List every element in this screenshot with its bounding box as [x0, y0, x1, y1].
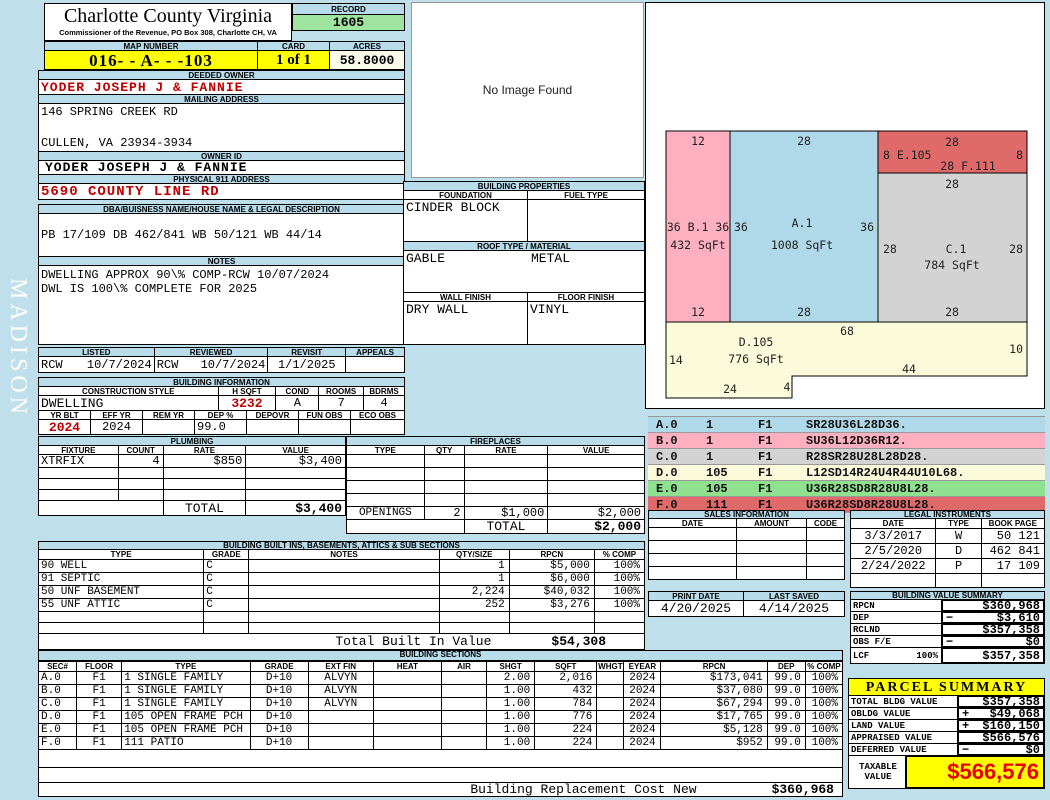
legend-row-d: D.0 105 F1 L12SD14R24U4R44U10L68.	[648, 464, 1045, 480]
table-row: 90 WELLC1$5,000100%	[39, 560, 645, 573]
table-cell	[373, 711, 441, 724]
sections-col-heat: HEAT	[373, 662, 441, 672]
page-title: Charlotte County Virginia	[45, 4, 291, 28]
legend-vector: R28SR28U28L28D28.	[806, 450, 928, 464]
construction-style-value: DWELLING	[38, 395, 219, 411]
table-cell	[249, 560, 439, 573]
table-cell: 105 OPEN FRAME PCH	[122, 711, 250, 724]
brcn-label: Building Replacement Cost New	[470, 782, 696, 797]
dates-block: PRINT DATE LAST SAVED 4/20/2025 4/14/202…	[648, 591, 845, 617]
sketch-d-4: 4	[784, 380, 791, 394]
table-cell: 111 PATIO	[122, 737, 250, 750]
table-row: F.0F1111 PATIOD+101.002242024$95299.0100…	[39, 737, 843, 750]
sketch-d-right: 10	[1009, 342, 1023, 356]
sketch-c1-bottom: 28	[945, 305, 959, 319]
sketch-b1-sqft: 432 SqFt	[670, 238, 725, 252]
openings-rate: $1,000	[464, 506, 549, 520]
table-cell: ALVYN	[308, 685, 373, 698]
roof-material-value: METAL	[531, 251, 570, 292]
table-cell: D+10	[250, 724, 308, 737]
table-cell: 50 121	[981, 529, 1044, 544]
reviewed-date: 10/7/2024	[201, 357, 266, 372]
revisit-date: 1/1/2025	[267, 356, 346, 373]
parcel-summary: PARCEL SUMMARY TOTAL BLDG VALUE $357,358…	[848, 678, 1045, 789]
building-sections-block: BUILDING SECTIONS SEC# FLOOR TYPE GRADE …	[38, 650, 843, 797]
taxable-value: $566,576	[905, 755, 1045, 789]
legend-vector: SR28U36L28D36.	[806, 418, 907, 432]
table-cell: F1	[77, 711, 122, 724]
table-cell: F1	[77, 698, 122, 711]
building-sections-title: BUILDING SECTIONS	[38, 650, 843, 661]
record-box: RECORD 1605	[292, 3, 405, 31]
table-cell: 100%	[594, 573, 644, 586]
physical-address-value: 5690 COUNTY LINE RD	[38, 183, 405, 200]
table-cell: 1.00	[487, 711, 535, 724]
brcn-value: $360,968	[772, 782, 834, 797]
plumbing-total-label: TOTAL	[163, 500, 247, 516]
no-image-text: No Image Found	[483, 83, 572, 97]
table-cell: F1	[77, 724, 122, 737]
table-cell: 2024	[624, 737, 661, 750]
legend-row-c: C.0 1 F1 R28SR28U28L28D28.	[648, 448, 1045, 464]
dep-value: 99.0	[194, 419, 247, 435]
sketch-c1-sqft: 784 SqFt	[924, 258, 979, 272]
table-cell: ALVYN	[308, 672, 373, 685]
acres-value: 58.8000	[329, 50, 405, 70]
table-row: 50 UNF BASEMENTC2,224$40,032100%	[39, 586, 645, 599]
empty-row	[39, 612, 645, 623]
table-cell: C	[204, 599, 249, 612]
plumbing-total-value: $3,400	[245, 500, 346, 516]
appeals-value	[345, 356, 405, 373]
foundation-value: CINDER BLOCK	[403, 199, 528, 242]
record-value: 1605	[292, 14, 405, 31]
table-row: B.0F11 SINGLE FAMILYD+10ALVYN1.004322024…	[39, 685, 843, 698]
reviewed-by: RCW	[157, 357, 179, 372]
owner-id-value: YODER JOSEPH J & FANNIE	[38, 160, 405, 175]
legend-row-e: E.0 105 F1 U36R28SD8R28U8L28.	[648, 480, 1045, 496]
legend-floor: F1	[758, 466, 806, 480]
legend-num: 105	[706, 466, 758, 480]
yrblt-value: 2024	[38, 419, 91, 435]
table-row: 3/3/2017W50 121	[851, 529, 1045, 544]
table-cell: 100%	[805, 724, 842, 737]
table-row: 2/24/2022P17 109	[851, 559, 1045, 574]
building-value-summary: BUILDING VALUE SUMMARY RPCN $360,968 DEP…	[850, 591, 1045, 664]
openings-value: $2,000	[547, 506, 645, 520]
instr-col-date: DATE	[851, 519, 936, 529]
table-cell: 90 WELL	[39, 560, 204, 573]
table-cell: $67,294	[661, 698, 767, 711]
table-cell: 55 UNF ATTIC	[39, 599, 204, 612]
table-cell: $37,080	[661, 685, 767, 698]
table-cell: 2/5/2020	[851, 544, 936, 559]
commissioner-line: Commissioner of the Revenue, PO Box 308,…	[45, 28, 291, 37]
card-value: 1 of 1	[257, 50, 330, 70]
empty-row	[851, 574, 1045, 588]
funobs-value	[298, 419, 351, 435]
table-cell: D+10	[250, 698, 308, 711]
sketch-d-top: 68	[840, 324, 854, 338]
table-cell: 2024	[624, 711, 661, 724]
table-cell: D	[936, 544, 981, 559]
table-cell	[249, 599, 439, 612]
sketch-ef-top: 28	[945, 135, 959, 149]
plumbing-fixture: XTRFIX	[38, 454, 119, 468]
vs-lcf-value: $357,358	[982, 649, 1040, 663]
sections-col-extfin: EXT FIN	[308, 662, 373, 672]
builtins-col-rpcn: RPCN	[509, 550, 594, 560]
legal-notes-block: DBA/BUISNESS NAME/HOUSE NAME & LEGAL DES…	[38, 204, 405, 345]
last-saved-value: 4/14/2025	[743, 600, 845, 617]
table-row: 2/5/2020D462 841	[851, 544, 1045, 559]
table-cell	[308, 724, 373, 737]
table-cell	[597, 698, 624, 711]
legal-description-value: PB 17/109 DB 462/841 WB 50/121 WB 44/14	[38, 213, 405, 257]
floor-finish-value: VINYL	[527, 301, 645, 345]
table-cell: 1.00	[487, 698, 535, 711]
sections-col-whgt: WHGT	[597, 662, 624, 672]
table-cell: C.0	[39, 698, 77, 711]
table-cell	[373, 685, 441, 698]
table-cell: 784	[535, 698, 597, 711]
table-cell: 1.00	[487, 724, 535, 737]
builtins-total-label: Total Built In Value	[335, 634, 491, 649]
sections-col-eyear: EYEAR	[624, 662, 661, 672]
table-cell: W	[936, 529, 981, 544]
table-cell: $3,276	[509, 599, 594, 612]
sketch-c1-top: 28	[945, 177, 959, 191]
builtins-col-type: TYPE	[39, 550, 204, 560]
table-row: C.0F11 SINGLE FAMILYD+10ALVYN1.007842024…	[39, 698, 843, 711]
plumbing-block: PLUMBING FIXTURE COUNT RATE VALUE XTRFIX…	[38, 436, 346, 516]
legend-sec: B.0	[648, 434, 706, 448]
map-number-value: 016- - A- - -103	[44, 50, 258, 70]
table-cell: $5,128	[661, 724, 767, 737]
fireplaces-total-label: TOTAL	[464, 519, 549, 534]
map-card-acres: MAP NUMBER CARD ACRES 016- - A- - -103 1…	[44, 41, 405, 70]
legend-floor: F1	[758, 450, 806, 464]
table-cell: 1.00	[487, 685, 535, 698]
table-cell: $952	[661, 737, 767, 750]
table-cell	[597, 711, 624, 724]
table-cell: D+10	[250, 711, 308, 724]
table-cell: 1 SINGLE FAMILY	[122, 672, 250, 685]
sketch-a1-bottom: 28	[797, 305, 811, 319]
sketch-b1-bottom: 12	[691, 305, 705, 319]
plumbing-value: $3,400	[245, 454, 346, 468]
fuel-type-value	[527, 199, 645, 242]
table-cell: 432	[535, 685, 597, 698]
openings-qty: 2	[424, 506, 465, 520]
table-cell	[441, 685, 486, 698]
table-cell	[441, 737, 486, 750]
table-cell: 1.00	[487, 737, 535, 750]
sketch-a1-sqft: 1008 SqFt	[771, 238, 833, 252]
builtins-total-value: $54,308	[551, 634, 606, 649]
mailing-line1: 146 SPRING CREEK RD	[41, 104, 404, 120]
table-cell	[308, 711, 373, 724]
table-row: D.0F1105 OPEN FRAME PCHD+101.007762024$1…	[39, 711, 843, 724]
table-cell: F1	[77, 685, 122, 698]
table-cell: 224	[535, 724, 597, 737]
table-cell: 100%	[805, 672, 842, 685]
table-cell: D+10	[250, 737, 308, 750]
instr-col-type: TYPE	[936, 519, 981, 529]
table-cell: $17,765	[661, 711, 767, 724]
table-row: 91 SEPTICC1$6,000100%	[39, 573, 645, 586]
builtins-col-notes: NOTES	[249, 550, 439, 560]
table-cell: 1 SINGLE FAMILY	[122, 698, 250, 711]
cond-value: A	[275, 395, 319, 411]
table-cell	[597, 737, 624, 750]
legend-sec: E.0	[648, 482, 706, 496]
legend-floor: F1	[758, 482, 806, 496]
legal-instruments-block: LEGAL INSTRUMENTS DATE TYPE BOOK PAGE 3/…	[850, 510, 1045, 588]
sections-col-sqft: SQFT	[535, 662, 597, 672]
sketch-c1-right: 28	[1009, 242, 1023, 256]
builtins-block: BUILDING BUILT INS, BASEMENTS, ATTICS & …	[38, 541, 645, 650]
sketch-ef-right: 8	[1016, 148, 1023, 162]
builtins-col-comp: % COMP	[594, 550, 644, 560]
table-cell: B.0	[39, 685, 77, 698]
table-cell: 2024	[624, 685, 661, 698]
table-cell: $6,000	[509, 573, 594, 586]
note-line1: DWELLING APPROX 90\% COMP-RCW 10/07/2024	[41, 268, 404, 282]
sketch-c1-name: C.1	[946, 242, 967, 256]
sections-col-comp: % COMP	[805, 662, 842, 672]
table-cell	[373, 737, 441, 750]
sketch-d-left: 14	[669, 353, 683, 367]
table-cell: ALVYN	[308, 698, 373, 711]
table-cell: 99.0	[767, 711, 805, 724]
legend-num: 105	[706, 482, 758, 496]
table-cell: 2024	[624, 698, 661, 711]
legend-num: 1	[706, 418, 758, 432]
legend-vector: SU36L12D36R12.	[806, 434, 907, 448]
ecoobs-value	[350, 419, 405, 435]
remyr-value	[142, 419, 195, 435]
review-block: LISTED REVIEWED REVISIT APPEALS RCW 10/7…	[38, 347, 405, 373]
sections-col-shgt: SHGT	[487, 662, 535, 672]
sections-col-dep: DEP	[767, 662, 805, 672]
legend-row-b: B.0 1 F1 SU36L12D36R12.	[648, 432, 1045, 448]
builtins-col-qty: QTY/SIZE	[439, 550, 509, 560]
table-cell: D.0	[39, 711, 77, 724]
table-cell	[597, 672, 624, 685]
table-cell: 100%	[805, 698, 842, 711]
legend-floor: F1	[758, 418, 806, 432]
table-cell: C	[204, 560, 249, 573]
table-cell: 3/3/2017	[851, 529, 936, 544]
table-cell	[249, 573, 439, 586]
table-cell: 91 SEPTIC	[39, 573, 204, 586]
building-info-block: BUILDING INFORMATION CONSTRUCTION STYLE …	[38, 377, 405, 435]
table-cell: 462 841	[981, 544, 1044, 559]
table-cell: E.0	[39, 724, 77, 737]
table-cell: F.0	[39, 737, 77, 750]
table-cell: C	[204, 586, 249, 599]
table-cell: 776	[535, 711, 597, 724]
table-cell	[441, 698, 486, 711]
legend-num: 1	[706, 450, 758, 464]
deeded-owner-value: YODER JOSEPH J & FANNIE	[38, 79, 405, 95]
table-cell: 99.0	[767, 724, 805, 737]
table-cell: 2,016	[535, 672, 597, 685]
table-cell: 99.0	[767, 698, 805, 711]
table-cell: 100%	[594, 586, 644, 599]
sketch-ef-mid: 28 F.111	[940, 159, 995, 173]
sketch-a1-right: 36	[860, 220, 874, 234]
table-cell: 252	[439, 599, 509, 612]
table-cell: 1	[439, 560, 509, 573]
title-block: Charlotte County Virginia Commissioner o…	[44, 3, 292, 41]
table-cell: 2.00	[487, 672, 535, 685]
listed-date: 10/7/2024	[87, 357, 152, 372]
table-cell: 99.0	[767, 685, 805, 698]
county-watermark: MADISON	[4, 278, 31, 418]
parcel-summary-title: PARCEL SUMMARY	[848, 678, 1045, 696]
plumbing-row: XTRFIX 4 $850 $3,400	[38, 454, 346, 468]
table-cell	[373, 724, 441, 737]
sections-col-rpcn: RPCN	[661, 662, 767, 672]
legend-vector: L12SD14R24U4R44U10L68.	[806, 466, 964, 480]
brcn-row: Building Replacement Cost New $360,968	[39, 783, 842, 796]
sketch-d-44: 44	[902, 362, 916, 376]
table-cell	[441, 672, 486, 685]
builtins-col-grade: GRADE	[204, 550, 249, 560]
table-cell: C	[204, 573, 249, 586]
sections-col-grade: GRADE	[250, 662, 308, 672]
vs-lcf-pct: 100%	[916, 651, 938, 661]
wall-finish-value: DRY WALL	[403, 301, 528, 345]
sketch-b1-top: 12	[691, 134, 705, 148]
table-cell: 100%	[805, 685, 842, 698]
table-row: E.0F1105 OPEN FRAME PCHD+101.002242024$5…	[39, 724, 843, 737]
table-cell: A.0	[39, 672, 77, 685]
sections-col-air: AIR	[441, 662, 486, 672]
table-row: 55 UNF ATTICC252$3,276100%	[39, 599, 645, 612]
table-cell: 100%	[805, 711, 842, 724]
sketch-panel: 12 36 B.1 36 432 SqFt 12 28 36 A.1 1008 …	[645, 2, 1045, 409]
legend-floor: F1	[758, 434, 806, 448]
table-cell: 2,224	[439, 586, 509, 599]
rooms-value: 7	[318, 395, 364, 411]
sketch-a1-name: A.1	[792, 216, 813, 230]
sketch-b1-mid: 36 B.1 36	[667, 220, 729, 234]
table-cell: 2024	[624, 724, 661, 737]
legend-sec: D.0	[648, 466, 706, 480]
table-cell: 1	[439, 573, 509, 586]
table-cell: 100%	[594, 560, 644, 573]
table-cell: 2/24/2022	[851, 559, 936, 574]
fireplaces-total-value: $2,000	[547, 519, 645, 534]
sketch-ef-left: 8 E.105	[883, 148, 931, 162]
photo-box: No Image Found	[411, 2, 644, 178]
vs-lcf-label: LCF	[853, 651, 869, 661]
sketch-a1-left: 36	[734, 220, 748, 234]
table-cell: $173,041	[661, 672, 767, 685]
table-cell	[373, 672, 441, 685]
effyr-value: 2024	[90, 419, 143, 435]
owner-block: DEEDED OWNER YODER JOSEPH J & FANNIE MAI…	[38, 70, 405, 200]
sketch-d-24: 24	[723, 382, 737, 396]
table-cell: 105 OPEN FRAME PCH	[122, 724, 250, 737]
table-cell: 2024	[624, 672, 661, 685]
legend-vector: U36R28SD8R28U8L28.	[806, 482, 936, 496]
table-cell: 17 109	[981, 559, 1044, 574]
table-cell: 99.0	[767, 737, 805, 750]
table-cell	[597, 724, 624, 737]
sketch-legend: A.0 1 F1 SR28U36L28D36. B.0 1 F1 SU36L12…	[648, 416, 1045, 513]
legend-sec: C.0	[648, 450, 706, 464]
instr-col-bookpage: BOOK PAGE	[981, 519, 1044, 529]
print-date-value: 4/20/2025	[648, 600, 744, 617]
fireplaces-block: FIREPLACES TYPE QTY RATE VALUE OPENINGS …	[346, 436, 645, 534]
legend-row-a: A.0 1 F1 SR28U36L28D36.	[648, 416, 1045, 432]
openings-label: OPENINGS	[346, 506, 425, 520]
table-cell	[441, 724, 486, 737]
hsqft-value: 3232	[218, 395, 277, 411]
table-cell: $5,000	[509, 560, 594, 573]
fireplaces-openings-row: OPENINGS 2 $1,000 $2,000	[346, 506, 645, 520]
plumbing-rate: $850	[163, 454, 247, 468]
plumbing-count: 4	[118, 454, 164, 468]
table-cell	[441, 711, 486, 724]
sections-col-type: TYPE	[122, 662, 250, 672]
table-cell: $40,032	[509, 586, 594, 599]
sketch-d-sqft: 776 SqFt	[728, 352, 783, 366]
building-properties-block: BUILDING PROPERTIES FOUNDATION FUEL TYPE…	[403, 181, 645, 345]
bdrms-value: 4	[363, 395, 405, 411]
mailing-line2: CULLEN, VA 23934-3934	[41, 135, 404, 151]
table-cell: F1	[77, 672, 122, 685]
sections-col-floor: FLOOR	[77, 662, 122, 672]
table-cell: D+10	[250, 685, 308, 698]
table-cell: 1 SINGLE FAMILY	[122, 685, 250, 698]
empty-row	[39, 623, 645, 634]
taxable-label: TAXABLE VALUE	[848, 755, 906, 789]
table-cell: 99.0	[767, 672, 805, 685]
legend-sec: A.0	[648, 418, 706, 432]
table-row: A.0F11 SINGLE FAMILYD+10ALVYN2.002,01620…	[39, 672, 843, 685]
table-cell	[597, 685, 624, 698]
sections-col-sec: SEC#	[39, 662, 77, 672]
table-cell	[249, 586, 439, 599]
table-cell: D+10	[250, 672, 308, 685]
table-cell	[373, 698, 441, 711]
building-sketch: 12 36 B.1 36 432 SqFt 12 28 36 A.1 1008 …	[646, 3, 1044, 408]
table-cell: F1	[77, 737, 122, 750]
depovr-value	[246, 419, 299, 435]
empty-row	[39, 767, 842, 783]
table-cell	[308, 737, 373, 750]
table-cell: 100%	[594, 599, 644, 612]
listed-by: RCW	[41, 357, 63, 372]
note-line2: DWL IS 100\% COMPLETE FOR 2025	[41, 282, 404, 296]
legend-num: 1	[706, 434, 758, 448]
table-cell: 50 UNF BASEMENT	[39, 586, 204, 599]
table-cell: P	[936, 559, 981, 574]
sketch-d-name: D.105	[739, 335, 774, 349]
roof-type-value: GABLE	[404, 251, 531, 292]
sketch-a1-top: 28	[797, 134, 811, 148]
sales-block: SALES INFORMATION DATE AMOUNT CODE	[648, 510, 845, 580]
table-cell: 224	[535, 737, 597, 750]
sketch-c1-left: 28	[883, 242, 897, 256]
table-cell: 100%	[805, 737, 842, 750]
